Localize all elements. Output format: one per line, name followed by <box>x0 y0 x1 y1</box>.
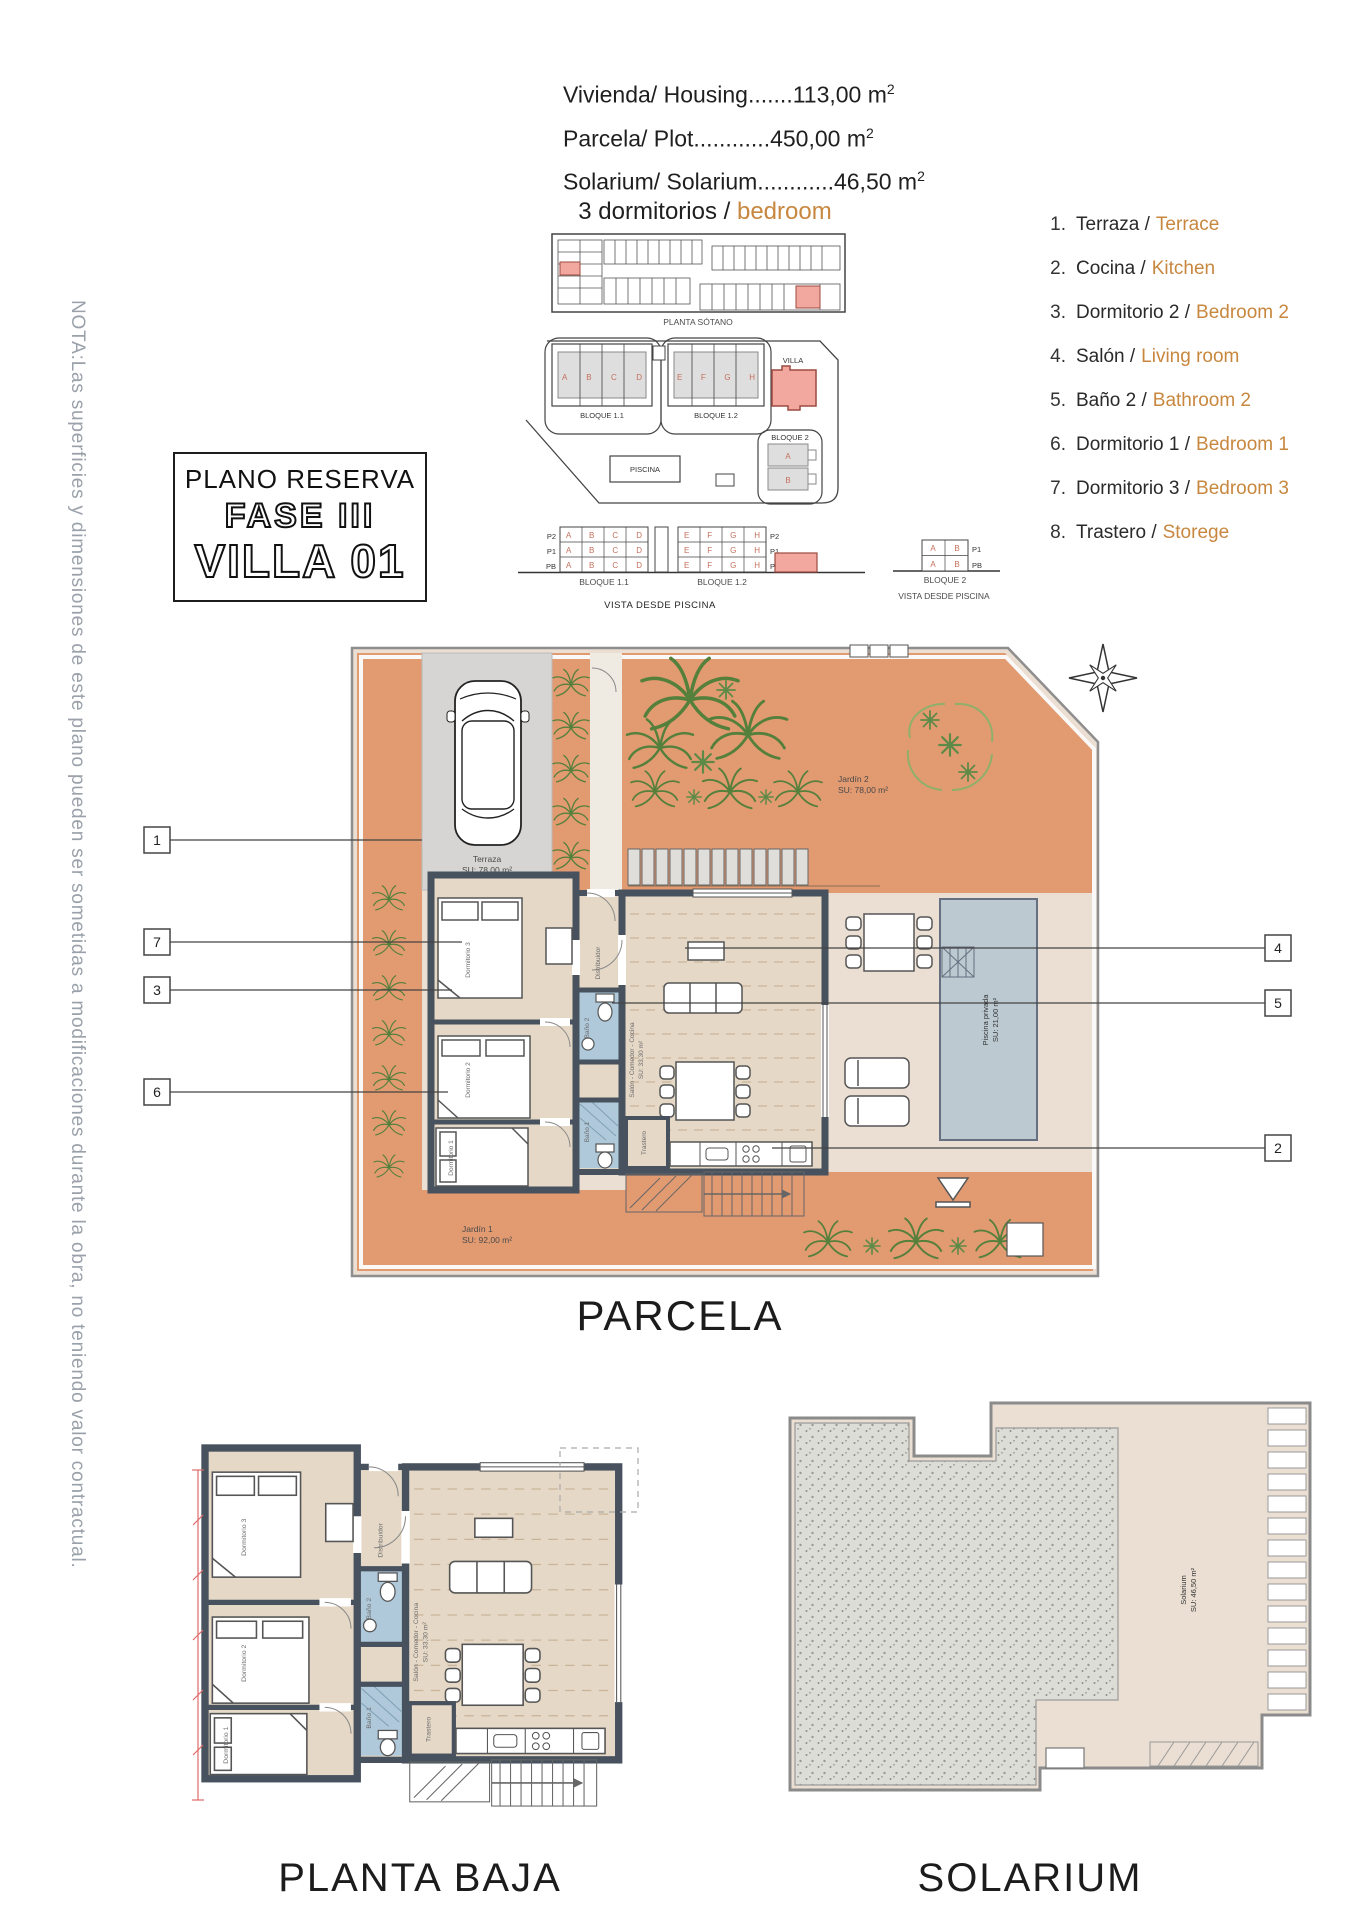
callout-4: 4 <box>1274 940 1282 956</box>
callout-3: 3 <box>153 982 161 998</box>
planta-baja-plan <box>192 1448 638 1806</box>
room-legend: 1.Terraza /Terrace 2.Cocina /Kitchen 3.D… <box>1040 214 1289 566</box>
solarium-plan: Solarium SU: 46,50 m² <box>790 1403 1310 1790</box>
elev2-a1: A <box>930 544 936 553</box>
label-solarium-su: SU: 46,50 m² <box>1189 1567 1198 1612</box>
solarium-access <box>1046 1748 1084 1768</box>
elev2-a2: A <box>930 560 936 569</box>
highlight-villa-elevation <box>775 553 817 572</box>
label-vista-desde-piscina: VISTA DESDE PISCINA <box>604 600 716 611</box>
elev2-b2: B <box>954 560 959 569</box>
compass-icon <box>1069 644 1137 712</box>
pool: Piscina privada SU: 21,00 m² <box>940 899 1037 1140</box>
outdoor-dining <box>846 914 932 971</box>
callout-1: 1 <box>153 832 161 848</box>
lounger-1 <box>845 1058 909 1088</box>
disclaimer-note: NOTA:Las superficies y dimensiones de es… <box>66 300 88 1569</box>
highlight-villa-sotano <box>560 262 580 275</box>
legend-item: 6.Dormitorio 1 /Bedroom 1 <box>1040 434 1289 478</box>
label-solarium: Solarium <box>1179 1575 1188 1605</box>
reservation-title-box: PLANO RESERVA FASE III VILLA 01 <box>173 452 427 602</box>
legend-item: 1.Terraza /Terrace <box>1040 214 1289 258</box>
legend-item: 5.Baño 2 /Bathroom 2 <box>1040 390 1289 434</box>
elev-label-bloque12: BLOQUE 1.2 <box>697 577 747 587</box>
plan-document-page: Dormitorio 3 Dormitorio 2 Dormitorio 1 D… <box>0 0 1356 1920</box>
plot-area-line: Parcela/ Plot............450,00 m2 <box>563 114 925 158</box>
elevation-bloque2-diagram: A B A B P1 PB BLOQUE 2 VISTA DESDE PISCI… <box>893 540 1000 601</box>
legend-item: 8.Trastero /Storege <box>1040 522 1289 566</box>
floor2-pb: PB <box>972 561 982 570</box>
callout-6: 6 <box>153 1084 161 1100</box>
unit-bloque2-b: B <box>785 476 790 485</box>
highlight-villa-sotano-2 <box>796 286 820 308</box>
elev2-b1: B <box>954 544 959 553</box>
label-bloque11: BLOQUE 1.1 <box>580 411 624 420</box>
parcela-title: PARCELA <box>530 1292 830 1340</box>
elevation-bloques-diagram: P2 P1 PB A B C D A B C D A B C D P2 P1 P… <box>518 527 865 611</box>
entry-path <box>590 653 622 890</box>
villa-title: VILLA 01 <box>175 534 425 588</box>
label-planta-sotano: PLANTA SÓTANO <box>663 317 733 327</box>
solarium-title: SOLARIUM <box>880 1856 1180 1901</box>
label-jardin2: Jardín 2 <box>838 774 869 784</box>
car-icon <box>447 681 529 845</box>
elev2-label: BLOQUE 2 <box>924 575 967 585</box>
area-measurements: Vivienda/ Housing.......113,00 m2 Parcel… <box>563 70 925 201</box>
floor-p2-right: P2 <box>770 532 779 541</box>
label-jardin1-su: SU: 92,00 m² <box>462 1235 512 1245</box>
lounger-2 <box>845 1096 909 1126</box>
legend-item: 7.Dormitorio 3 /Bedroom 3 <box>1040 478 1289 522</box>
label-piscina-priv: Piscina privada <box>981 994 990 1046</box>
planta-sotano-diagram: PLANTA SÓTANO <box>552 234 845 327</box>
callout-2: 2 <box>1274 1140 1282 1156</box>
floor-p2-left: P2 <box>547 532 556 541</box>
label-jardin1: Jardín 1 <box>462 1224 493 1234</box>
floor-p1-left: P1 <box>547 547 556 556</box>
label-piscina-su: SU: 21,00 m² <box>991 997 1000 1042</box>
floor-pb-left: PB <box>546 562 556 571</box>
legend-item: 2.Cocina /Kitchen <box>1040 258 1289 302</box>
utility-boxes <box>850 645 908 657</box>
site-plan-diagram: A B C D BLOQUE 1.1 E F G H BLOQUE 1.2 VI… <box>526 338 838 504</box>
plano-reserva-title: PLANO RESERVA <box>175 464 425 495</box>
legend-item: 3.Dormitorio 2 /Bedroom 2 <box>1040 302 1289 346</box>
callout-7: 7 <box>153 934 161 950</box>
label-terraza: Terraza <box>473 854 502 864</box>
elev-label-bloque11: BLOQUE 1.1 <box>579 577 629 587</box>
housing-area-line: Vivienda/ Housing.......113,00 m2 <box>563 70 925 114</box>
label-villa: VILLA <box>783 356 803 365</box>
bedrooms-heading: 3 dormitorios / bedroom <box>540 198 870 226</box>
legend-item: 4.Salón /Living room <box>1040 346 1289 390</box>
solarium-area-line: Solarium/ Solarium............46,50 m2 <box>563 157 925 201</box>
label-vista-2: VISTA DESDE PISCINA <box>898 591 990 601</box>
fase-title: FASE III <box>175 497 425 536</box>
unit-bloque2-a: A <box>785 452 791 461</box>
planta-baja-title: PLANTA BAJA <box>260 1856 580 1901</box>
label-bloque2: BLOQUE 2 <box>771 433 809 442</box>
label-bloque12: BLOQUE 1.2 <box>694 411 738 420</box>
label-piscina-site: PISCINA <box>630 465 660 474</box>
label-jardin2-su: SU: 78,00 m² <box>838 785 888 795</box>
shed <box>1007 1223 1043 1256</box>
callout-5: 5 <box>1274 995 1282 1011</box>
floor2-p1: P1 <box>972 545 981 554</box>
highlight-villa-site <box>772 366 816 410</box>
parcela-plan: Terraza SU: 78,00 m² <box>144 644 1291 1276</box>
